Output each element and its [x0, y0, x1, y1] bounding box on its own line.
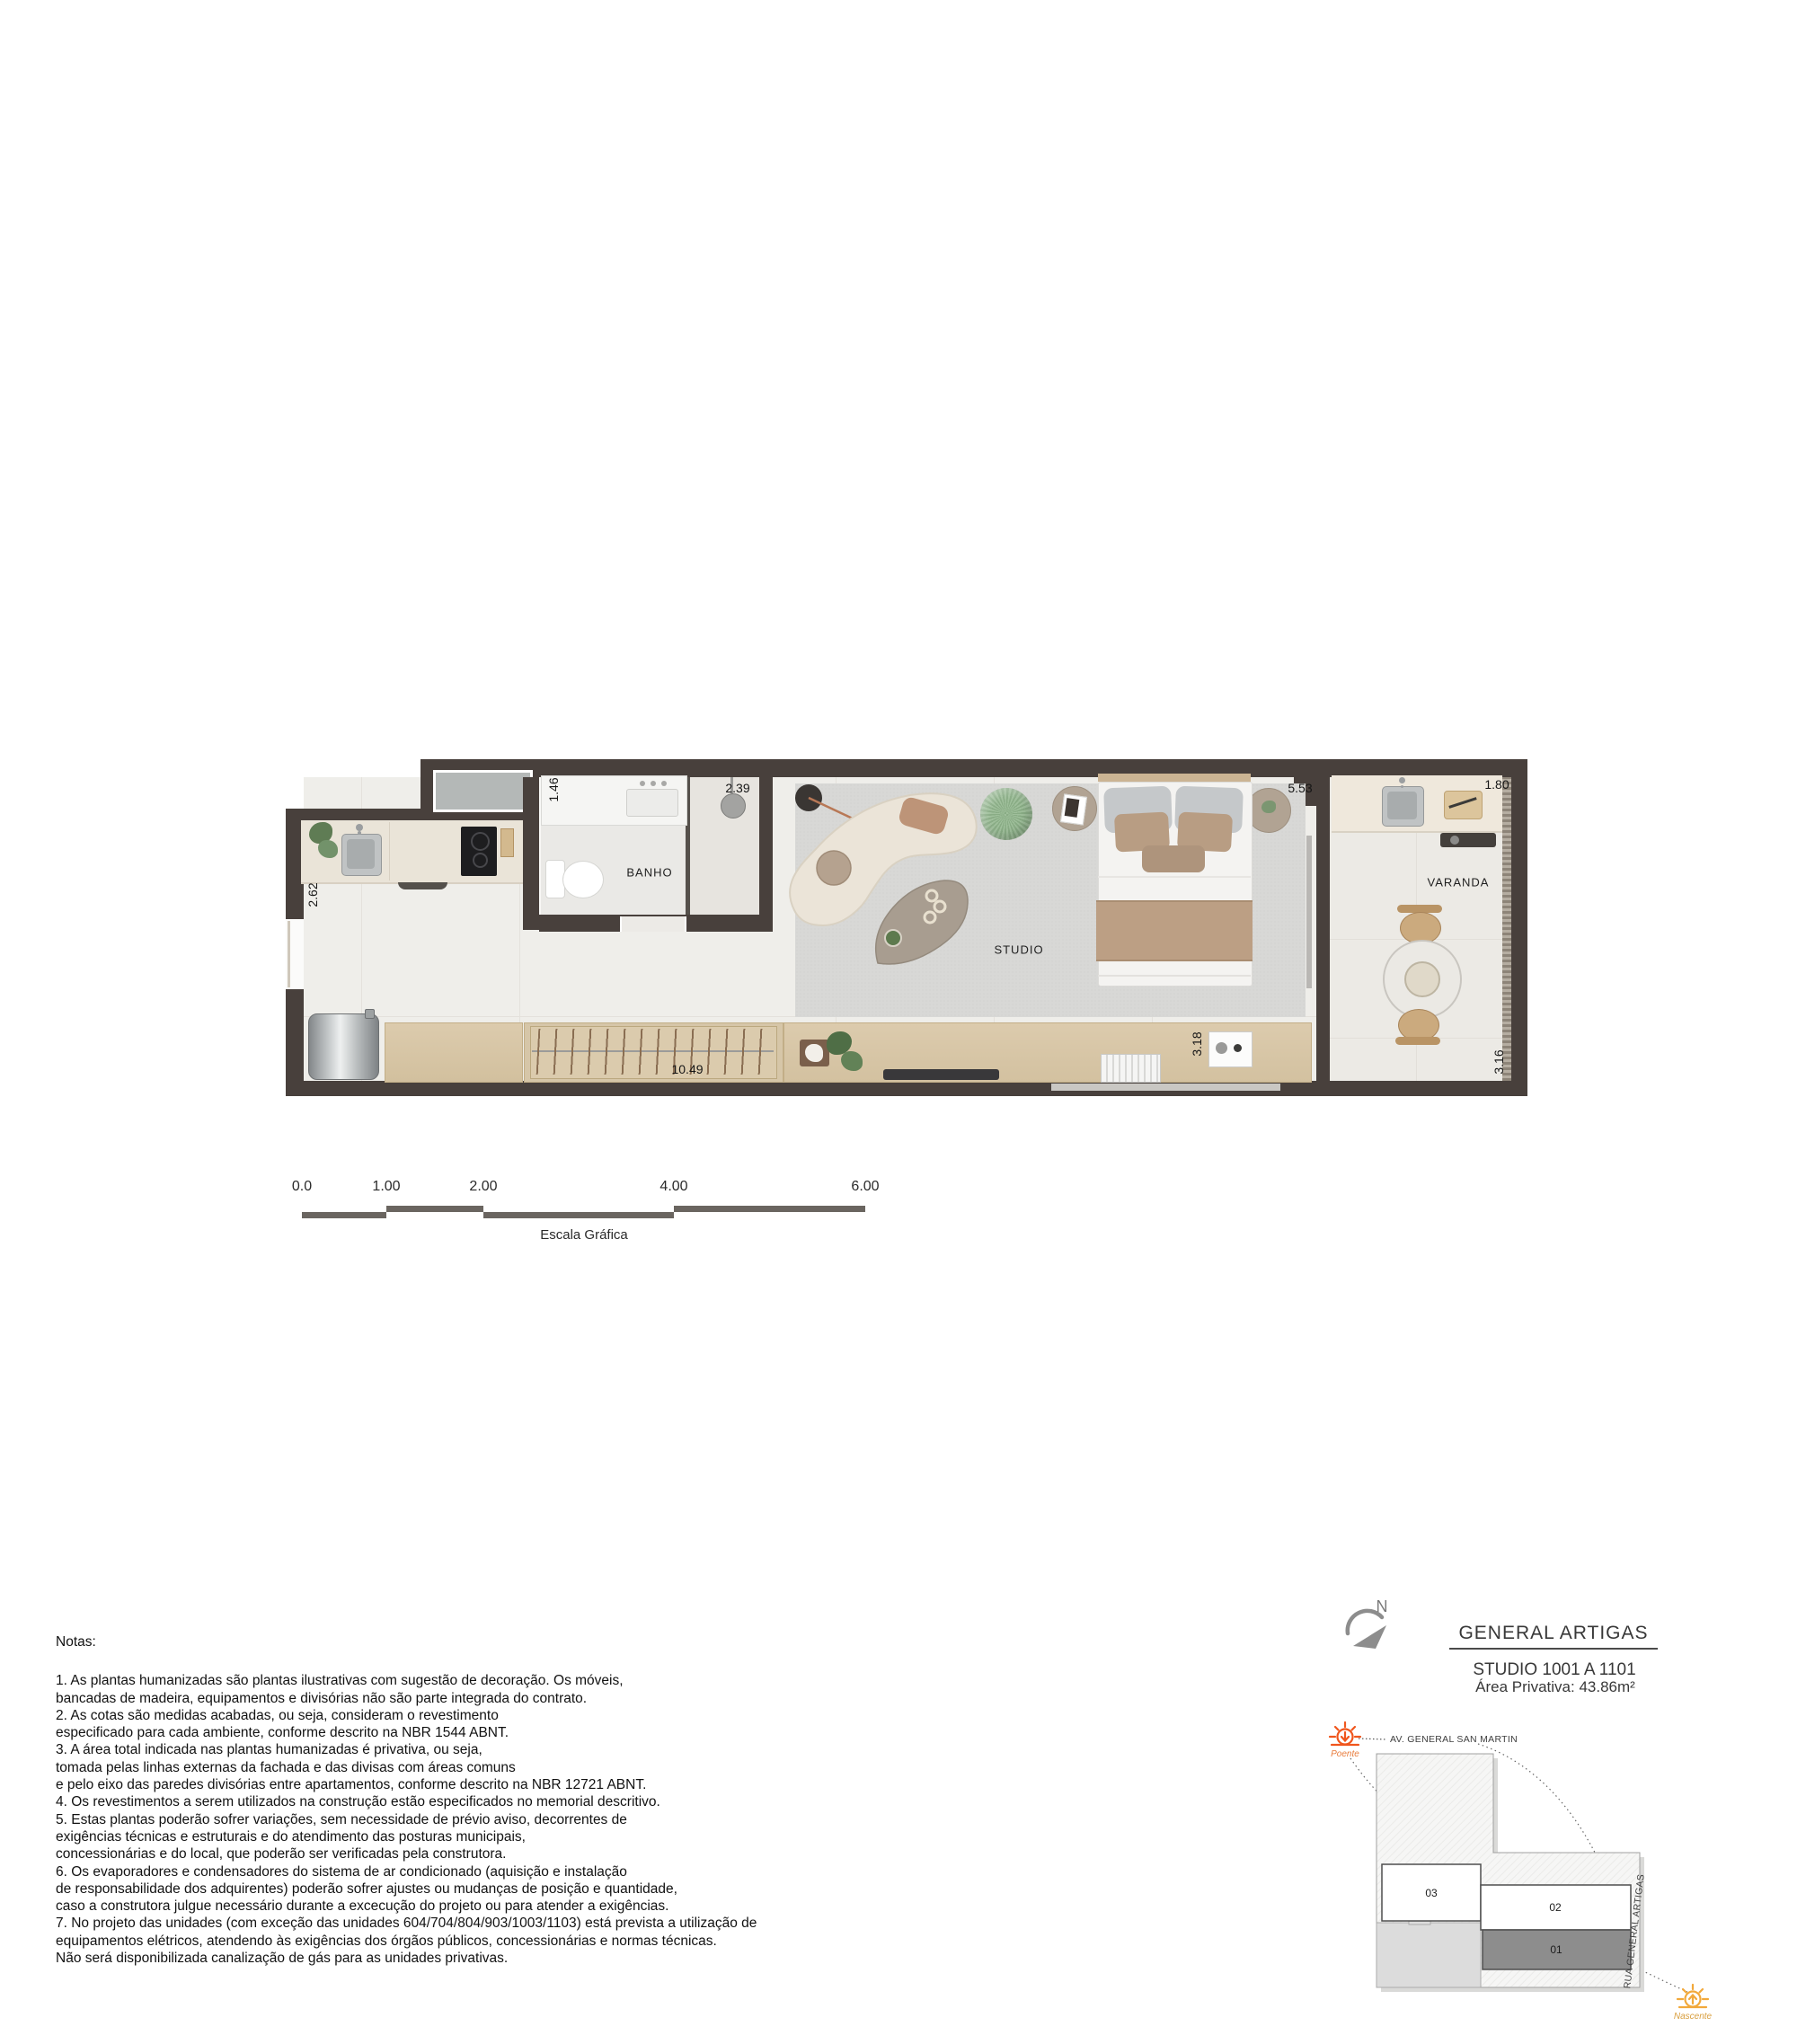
site-block-light	[1377, 1923, 1481, 1987]
dim-3-16: 3.16	[1492, 1049, 1506, 1074]
scale-tick: 6.00	[851, 1179, 879, 1195]
unit-range: STUDIO 1001 A 1101	[1473, 1660, 1635, 1680]
scale-tick: 0.0	[292, 1179, 312, 1195]
pouf-icon	[980, 788, 1032, 840]
note-line: tomada pelas linhas externas da fachada …	[56, 1759, 757, 1776]
title-rule	[1449, 1648, 1658, 1650]
note-line: bancadas de madeira, equipamentos e divi…	[56, 1690, 757, 1707]
note-line: caso a construtora julgue necessário dur…	[56, 1898, 757, 1915]
scale-caption: Escala Gráfica	[540, 1227, 628, 1243]
washer-cylinder	[308, 1013, 379, 1080]
scale-segment	[386, 1206, 483, 1212]
sun-east-icon	[1677, 1985, 1708, 2007]
speaker-knob	[1216, 1042, 1227, 1054]
scale-segment	[483, 1212, 674, 1218]
bed-throw	[1096, 900, 1253, 961]
dim-10-49: 10.49	[671, 1062, 703, 1076]
room-label-banho: BANHO	[626, 866, 672, 880]
scale-segment	[302, 1212, 386, 1218]
console-plant-icon	[841, 1051, 863, 1071]
dim-5-53: 5.53	[1288, 781, 1312, 795]
dim-1-46: 1.46	[546, 777, 561, 801]
scale-tick: 1.00	[372, 1179, 400, 1195]
table-decor-hat	[1404, 961, 1440, 997]
street-label-top: AV. GENERAL SAN MARTIN	[1390, 1734, 1518, 1745]
scale-tick: 4.00	[659, 1179, 687, 1195]
site-unit-03-label: 03	[1425, 1887, 1438, 1899]
room-label-varanda: VARANDA	[1428, 876, 1490, 889]
bed-sheet-line	[1098, 876, 1251, 878]
balcony-sink-bowl	[1387, 792, 1417, 819]
nightstand-book-cover	[1065, 798, 1080, 818]
notes-block: Notas: 1. As plantas humanizadas são pla…	[56, 1633, 757, 1967]
dim-2-62: 2.62	[305, 882, 320, 907]
note-line: 3. A área total indicada nas plantas hum…	[56, 1741, 757, 1758]
note-line: e pelo eixo das paredes divisórias entre…	[56, 1776, 757, 1793]
note-line: 5. Estas plantas poderão sofrer variaçõe…	[56, 1811, 757, 1828]
sun-west-icon	[1330, 1722, 1360, 1745]
grill	[1440, 833, 1496, 847]
north-arrow-icon: N	[1335, 1588, 1407, 1651]
decor-shell	[805, 1044, 823, 1062]
dim-3-18: 3.18	[1190, 1031, 1204, 1056]
note-line: 7. No projeto das unidades (com exceção …	[56, 1915, 757, 1932]
private-area: Área Privativa: 43.86m²	[1475, 1678, 1635, 1696]
note-line: de responsabilidade dos adquirentes) pod…	[56, 1880, 757, 1898]
note-line: 2. As cotas são medidas acabadas, ou sej…	[56, 1707, 757, 1724]
bed-foot-line	[1098, 975, 1251, 977]
sun-east-label: Nascente	[1674, 2012, 1713, 2022]
site-map: 03 02 01 AV. GENERAL SAN MARTIN RUA GENE…	[1321, 1712, 1734, 2044]
note-line: especificado para cada ambiente, conform…	[56, 1724, 757, 1741]
washer-knob	[365, 1009, 375, 1019]
notes-heading: Notas:	[56, 1633, 757, 1650]
dim-1-80: 1.80	[1484, 777, 1509, 792]
dim-2-39: 2.39	[725, 781, 749, 795]
balcony-faucet-icon	[1399, 777, 1405, 783]
bed-lumbar-pillow	[1142, 845, 1205, 872]
wood-cabinet	[385, 1022, 523, 1083]
note-line: concessionárias e do local, que poderão …	[56, 1845, 757, 1863]
project-title: GENERAL ARTIGAS	[1458, 1623, 1648, 1644]
scale-tick: 2.00	[469, 1179, 497, 1195]
books-stack	[1101, 1054, 1161, 1083]
scale-segment	[674, 1206, 865, 1212]
note-line: 6. Os evaporadores e condensadores do si…	[56, 1863, 757, 1880]
site-unit-02-label: 02	[1549, 1901, 1562, 1914]
street-leader	[1359, 1739, 1387, 1739]
tv-icon	[883, 1069, 999, 1080]
note-line: exigências técnicas e estruturais e do a…	[56, 1828, 757, 1845]
grill-knob	[1450, 836, 1459, 845]
note-line: 4. Os revestimentos a serem utilizados n…	[56, 1793, 757, 1810]
site-unit-01-label: 01	[1550, 1943, 1562, 1956]
note-line: equipamentos elétricos, atendendo às exi…	[56, 1933, 757, 1950]
floorplan-sheet: BANHO STUDIO VARANDA 2.62 1.46 2.39 5.53…	[0, 0, 1797, 2044]
dining-chair	[1395, 1037, 1440, 1045]
note-line: Não será disponibilizada canalização de …	[56, 1950, 757, 1967]
sun-west-label: Poente	[1331, 1749, 1359, 1759]
room-label-studio: STUDIO	[994, 943, 1043, 957]
closet-hangers	[536, 1029, 771, 1075]
nightstand-plant-icon	[1261, 801, 1276, 813]
speaker-knob	[1234, 1044, 1242, 1052]
floor-plan: BANHO STUDIO VARANDA 2.62 1.46 2.39 5.53…	[286, 759, 1527, 1096]
coffee-table-icon	[876, 880, 968, 964]
bed-headboard	[1098, 774, 1251, 782]
note-line: 1. As plantas humanizadas são plantas il…	[56, 1672, 757, 1689]
